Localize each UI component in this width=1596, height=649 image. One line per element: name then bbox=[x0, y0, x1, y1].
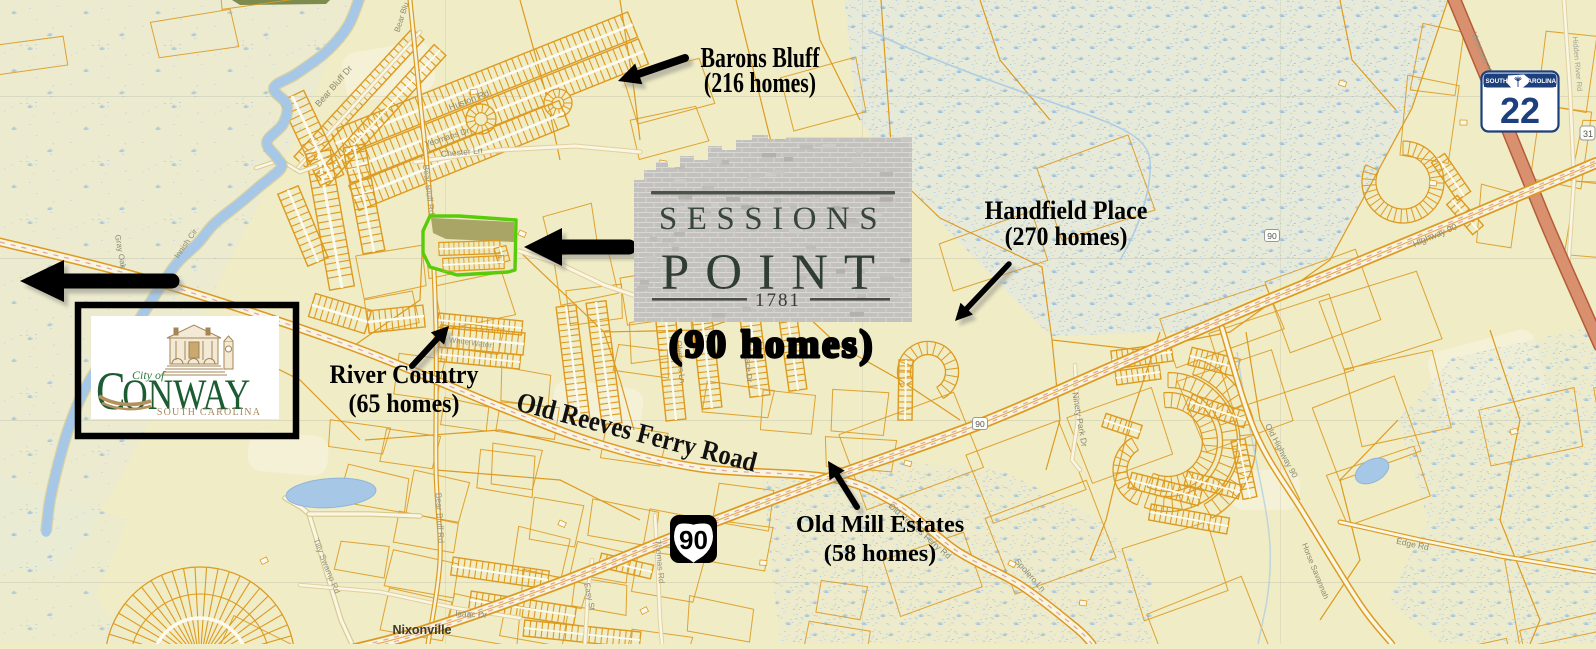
svg-text:31: 31 bbox=[1583, 129, 1593, 139]
svg-text:(270 homes): (270 homes) bbox=[1005, 223, 1128, 251]
svg-text:90: 90 bbox=[679, 525, 708, 555]
svg-text:Old Mill Estates: Old Mill Estates bbox=[796, 511, 964, 538]
svg-text:SOUTH: SOUTH bbox=[1485, 78, 1507, 85]
svg-text:90: 90 bbox=[975, 419, 985, 429]
svg-text:(90 homes): (90 homes) bbox=[669, 323, 875, 366]
svg-text:90: 90 bbox=[1267, 231, 1277, 241]
svg-text:Handfield Place: Handfield Place bbox=[985, 197, 1148, 225]
svg-text:SOUTH CAROLINA: SOUTH CAROLINA bbox=[157, 407, 261, 418]
svg-text:SESSIONS: SESSIONS bbox=[659, 201, 887, 237]
svg-text:(65 homes): (65 homes) bbox=[349, 390, 460, 418]
svg-text:(58 homes): (58 homes) bbox=[824, 540, 936, 567]
svg-text:River Country: River Country bbox=[330, 361, 479, 389]
svg-text:Isaac Dr: Isaac Dr bbox=[455, 608, 487, 620]
svg-text:1781: 1781 bbox=[755, 290, 801, 311]
svg-text:Nixonville: Nixonville bbox=[392, 623, 451, 637]
svg-text:(216 homes): (216 homes) bbox=[704, 69, 816, 99]
svg-text:22: 22 bbox=[1500, 90, 1540, 131]
